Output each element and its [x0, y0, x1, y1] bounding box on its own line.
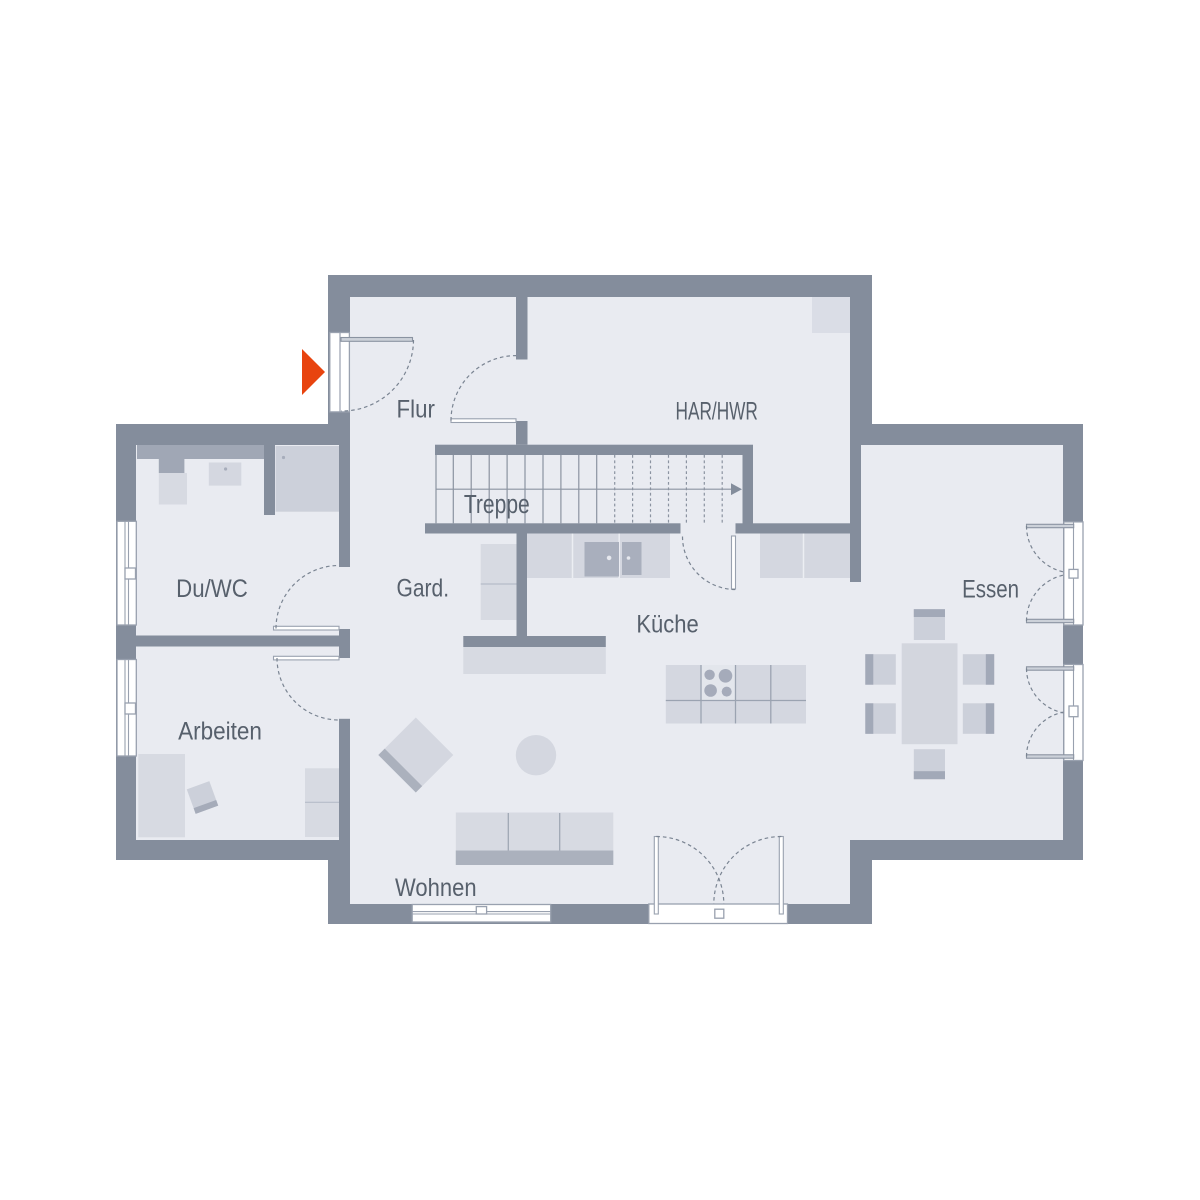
svg-text:Gard.: Gard. [397, 574, 450, 602]
svg-text:Küche: Küche [636, 610, 698, 638]
svg-text:HAR/HWR: HAR/HWR [676, 397, 758, 425]
svg-text:Du/WC: Du/WC [176, 576, 248, 603]
svg-text:Essen: Essen [962, 575, 1019, 603]
svg-text:Treppe: Treppe [464, 491, 530, 520]
svg-text:Wohnen: Wohnen [395, 874, 477, 902]
svg-text:Arbeiten: Arbeiten [178, 717, 262, 745]
svg-text:Flur: Flur [397, 396, 435, 423]
